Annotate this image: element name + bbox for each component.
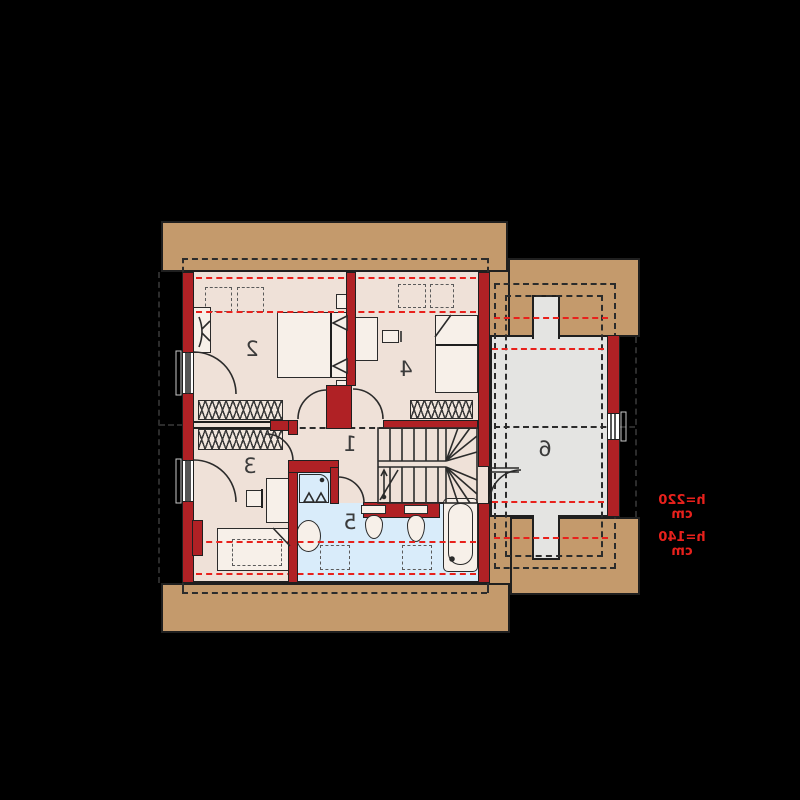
height-annotation-140: h=140 cm [646, 531, 718, 559]
pillow-icon [333, 316, 347, 373]
door-swing-bathroom [338, 477, 364, 503]
door-swing-room3 [266, 434, 293, 461]
floor-plan-canvas: 1 2 3 4 5 6 h=220 cm h=140 cm [0, 0, 800, 800]
door-swing-room3-balcony [188, 460, 236, 502]
door-swing-room2 [298, 390, 327, 419]
room-label-2: 2 [238, 338, 266, 360]
room-label-6: 6 [531, 438, 559, 460]
plan-symbols-overlay [0, 0, 800, 800]
bathtub-drain [450, 557, 454, 561]
tv-icon [199, 317, 401, 347]
height-annotation-220: h=220 cm [646, 494, 718, 522]
stairs-icon [378, 428, 477, 503]
room-label-3: 3 [236, 455, 264, 477]
door-swing-room2-balcony [188, 352, 236, 394]
door-swing-storage [490, 468, 521, 501]
room-label-4: 4 [392, 358, 420, 380]
room-label-5: 5 [336, 511, 364, 533]
room-label-1: 1 [336, 433, 364, 455]
shower-door-marks [304, 479, 326, 503]
door-swing-room4 [353, 389, 383, 419]
